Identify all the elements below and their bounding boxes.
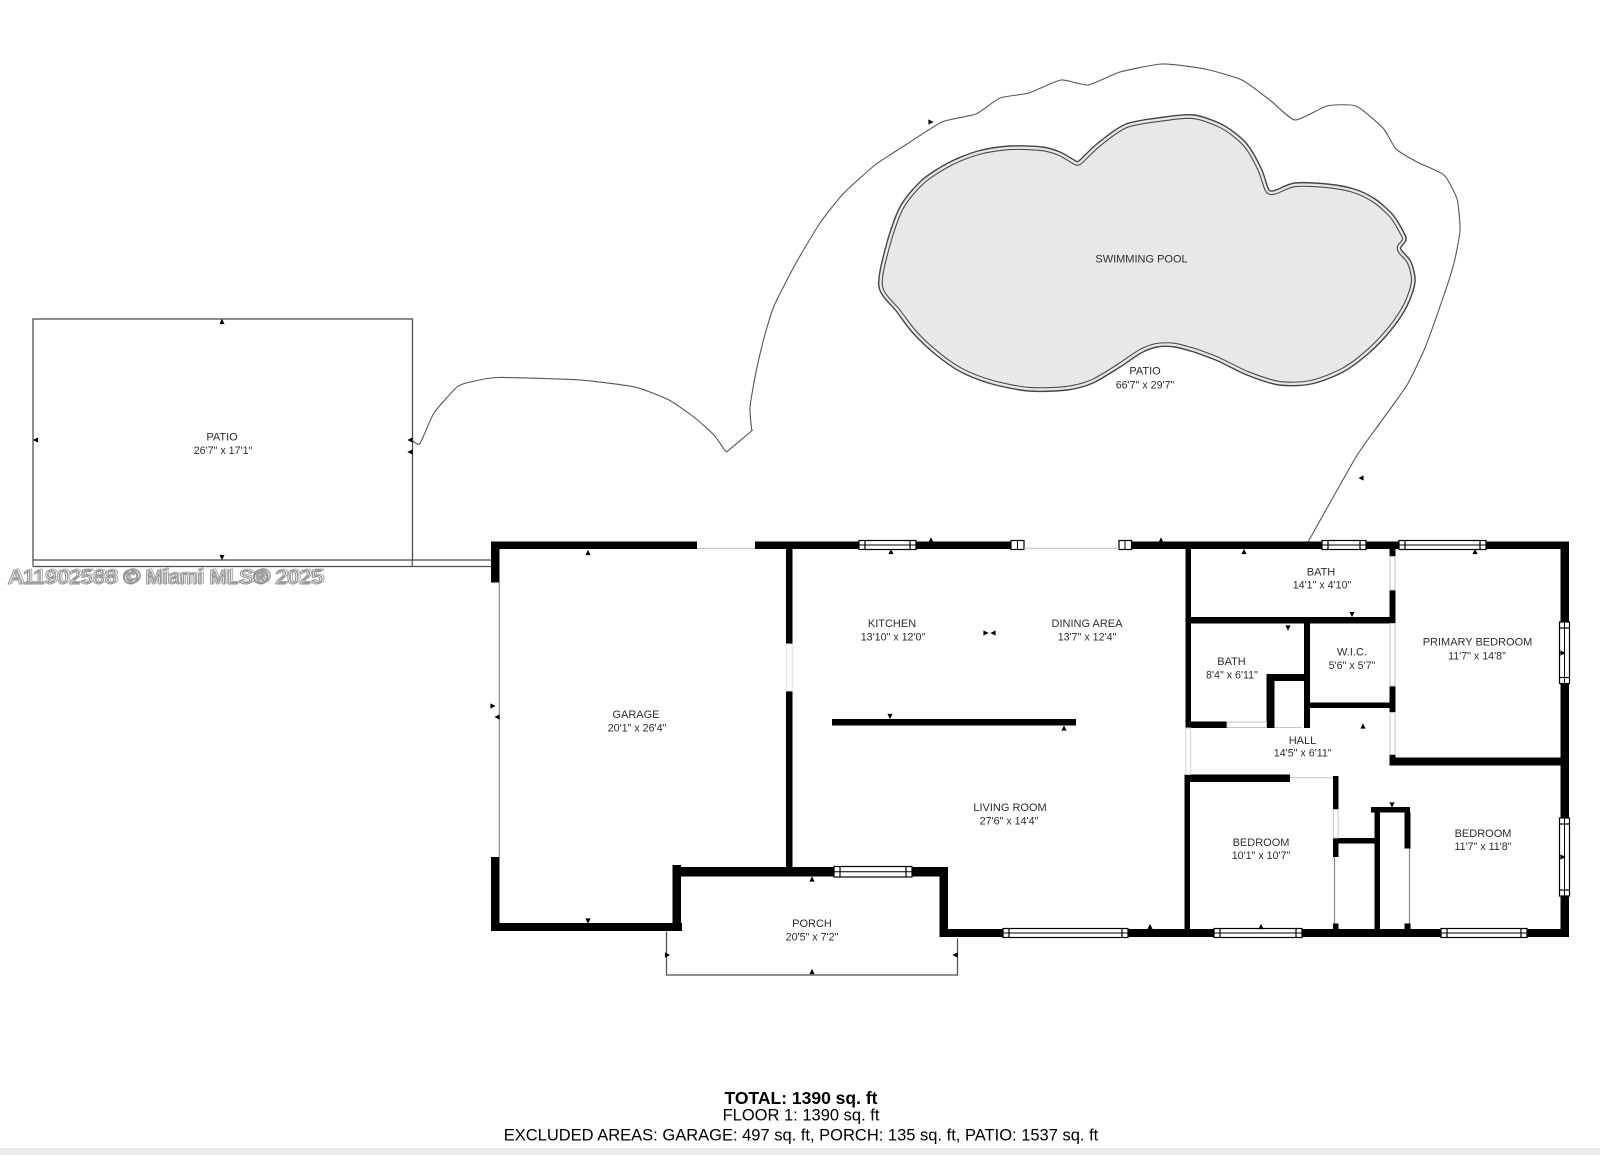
svg-text:BEDROOM: BEDROOM	[1455, 828, 1512, 840]
svg-text:PORCH: PORCH	[792, 918, 832, 930]
svg-text:11'7" x 11'8": 11'7" x 11'8"	[1454, 841, 1511, 853]
svg-text:GARAGE: GARAGE	[612, 709, 659, 721]
svg-text:SWIMMING POOL: SWIMMING POOL	[1095, 254, 1187, 266]
svg-text:DINING AREA: DINING AREA	[1052, 618, 1124, 630]
svg-text:BEDROOM: BEDROOM	[1233, 837, 1290, 849]
svg-text:LIVING ROOM: LIVING ROOM	[973, 802, 1046, 814]
svg-text:FLOOR 1: 1390 sq. ft: FLOOR 1: 1390 sq. ft	[723, 1107, 880, 1125]
svg-text:W.I.C.: W.I.C.	[1337, 647, 1367, 659]
svg-text:14'1" x 4'10": 14'1" x 4'10"	[1293, 579, 1352, 591]
svg-text:5'6" x 5'7": 5'6" x 5'7"	[1329, 660, 1376, 672]
svg-text:KITCHEN: KITCHEN	[868, 618, 916, 630]
svg-text:PATIO: PATIO	[206, 432, 238, 444]
svg-text:14'5" x 6'11": 14'5" x 6'11"	[1274, 747, 1332, 759]
svg-text:BATH: BATH	[1217, 656, 1246, 668]
svg-text:EXCLUDED AREAS: GARAGE: 497 sq: EXCLUDED AREAS: GARAGE: 497 sq. ft, PORC…	[504, 1127, 1099, 1145]
svg-text:PATIO: PATIO	[1129, 366, 1161, 378]
svg-text:20'5" x 7'2": 20'5" x 7'2"	[786, 931, 839, 943]
svg-text:26'7" x 17'1": 26'7" x 17'1"	[194, 445, 253, 457]
svg-text:TOTAL: 1390 sq. ft: TOTAL: 1390 sq. ft	[725, 1088, 878, 1108]
svg-text:27'6" x 14'4": 27'6" x 14'4"	[980, 815, 1039, 827]
svg-text:10'1" x 10'7": 10'1" x 10'7"	[1232, 850, 1291, 862]
svg-text:HALL: HALL	[1289, 735, 1317, 747]
svg-text:PRIMARY BEDROOM: PRIMARY BEDROOM	[1423, 637, 1533, 649]
svg-text:13'10" x 12'0": 13'10" x 12'0"	[861, 631, 926, 643]
svg-text:13'7" x 12'4": 13'7" x 12'4"	[1058, 631, 1117, 643]
svg-text:20'1" x 26'4": 20'1" x 26'4"	[608, 722, 667, 734]
svg-text:11'7" x 14'8": 11'7" x 14'8"	[1448, 650, 1506, 662]
svg-text:8'4" x 6'11": 8'4" x 6'11"	[1206, 669, 1258, 681]
svg-text:A11902588 © Miami MLS® 2025: A11902588 © Miami MLS® 2025	[11, 565, 326, 588]
svg-text:BATH: BATH	[1307, 566, 1336, 578]
svg-text:66'7" x 29'7": 66'7" x 29'7"	[1116, 379, 1175, 391]
